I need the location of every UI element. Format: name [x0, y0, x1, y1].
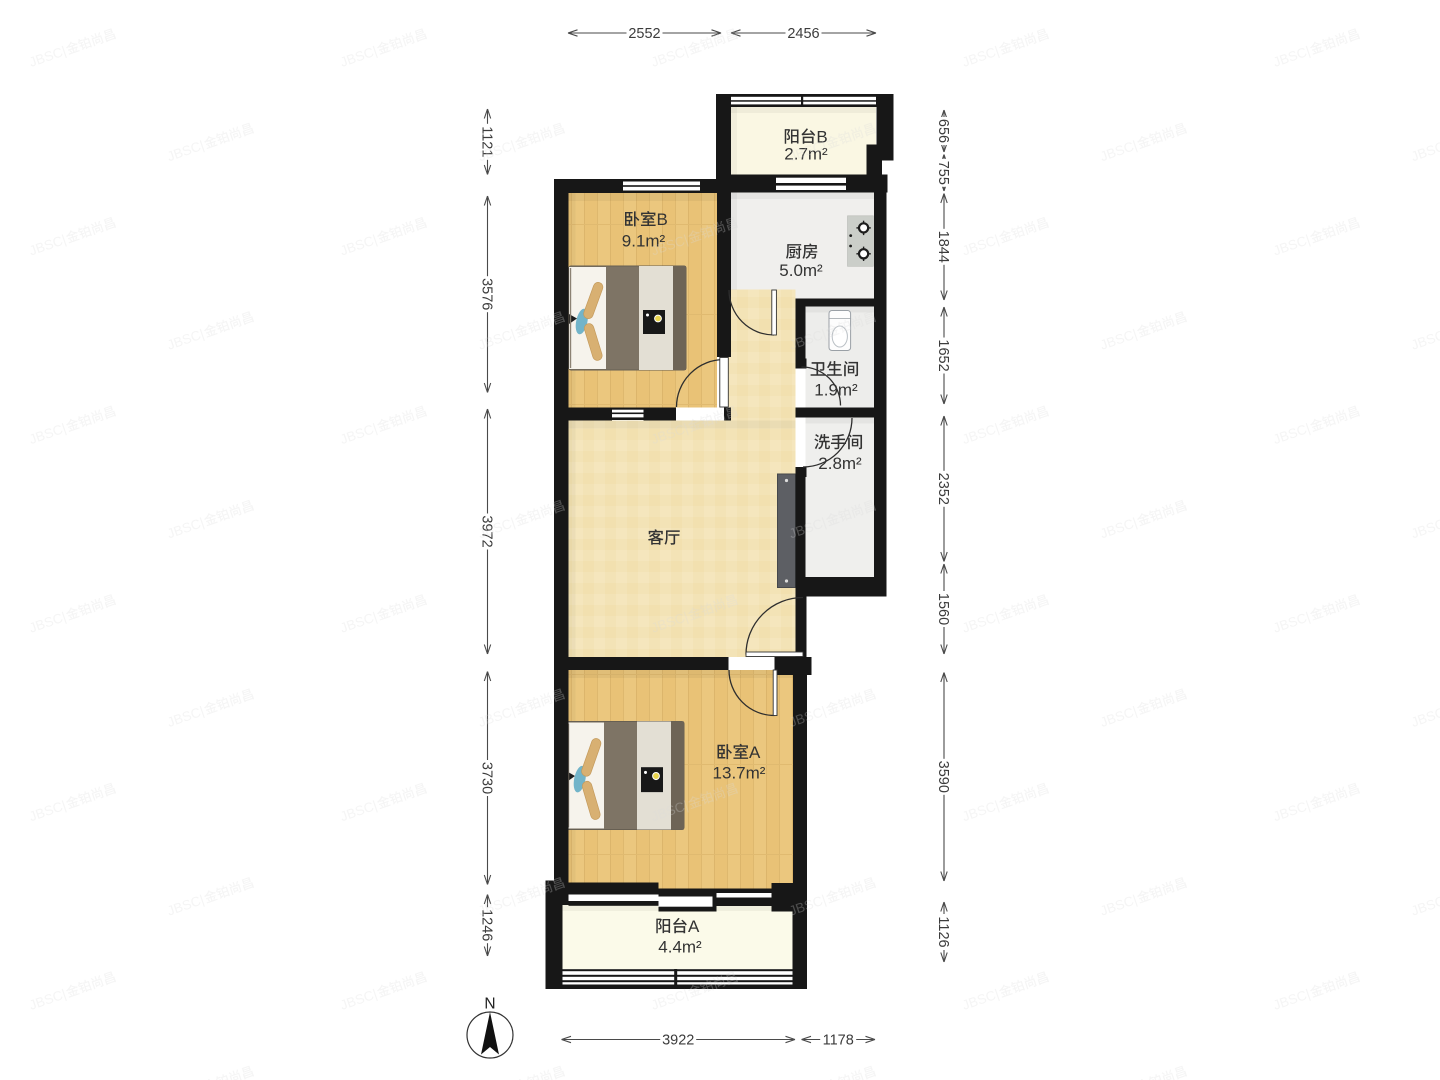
svg-text:3576: 3576 — [479, 278, 495, 310]
svg-text:1178: 1178 — [823, 1033, 854, 1049]
svg-text:3922: 3922 — [662, 1033, 694, 1049]
svg-text:2.8m²: 2.8m² — [818, 454, 862, 473]
svg-text:A: A — [749, 743, 761, 762]
svg-text:A: A — [688, 917, 700, 936]
svg-text:3590: 3590 — [935, 761, 951, 793]
svg-text:2352: 2352 — [935, 473, 951, 505]
svg-text:13.7m²: 13.7m² — [713, 764, 766, 783]
svg-text:B: B — [657, 210, 668, 229]
svg-text:5.0m²: 5.0m² — [779, 261, 823, 280]
svg-text:1560: 1560 — [935, 593, 951, 625]
svg-text:1652: 1652 — [935, 339, 951, 371]
svg-text:1844: 1844 — [935, 231, 951, 263]
svg-text:1126: 1126 — [935, 916, 951, 947]
svg-text:3730: 3730 — [479, 762, 495, 794]
svg-text:2456: 2456 — [787, 26, 819, 42]
svg-text:755: 755 — [935, 161, 951, 185]
svg-text:2552: 2552 — [628, 26, 660, 42]
svg-text:N: N — [484, 996, 495, 1013]
svg-text:656: 656 — [935, 119, 951, 143]
svg-text:4.4m²: 4.4m² — [658, 938, 702, 957]
svg-text:1.9m²: 1.9m² — [814, 381, 858, 400]
